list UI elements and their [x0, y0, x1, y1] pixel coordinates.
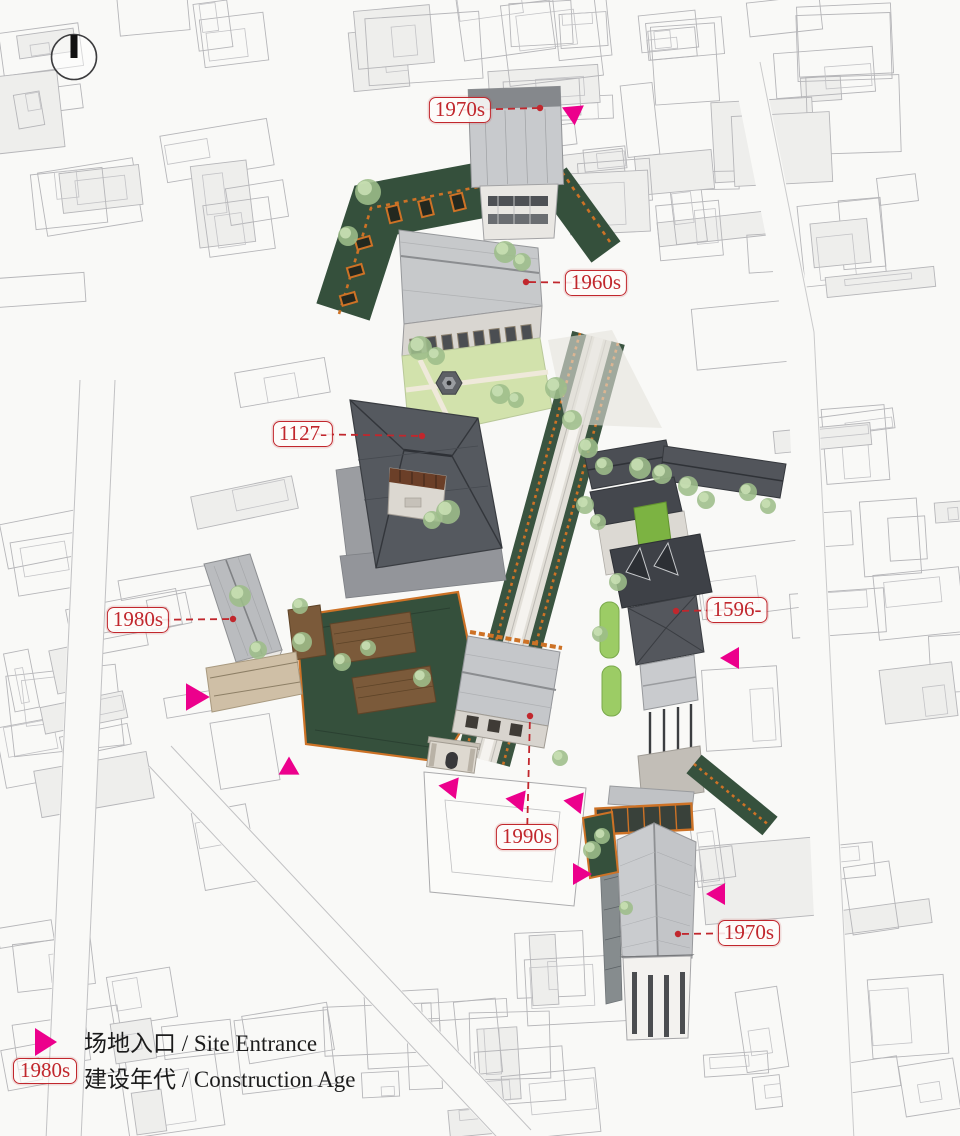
age-label-dot — [537, 105, 543, 111]
north-indicator — [46, 28, 104, 91]
age-label-dot — [675, 931, 681, 937]
age-label-dot — [673, 608, 679, 614]
age-label: 1970s — [718, 920, 780, 946]
south-hall-1990s — [452, 632, 562, 748]
hall-1127 — [336, 400, 506, 598]
age-label-dot — [523, 279, 529, 285]
age-label: 1127- — [273, 421, 333, 447]
age-label-dot — [527, 713, 533, 719]
age-label-dot — [230, 616, 236, 622]
age-label: 1970s — [429, 97, 491, 123]
legend-age-sample: 1980s — [13, 1058, 77, 1084]
age-label: 1596- — [707, 597, 768, 623]
site-plan-canvas: 1970s1960s1127-1596-1980s1990s1970s 场地入口… — [0, 0, 960, 1136]
age-label-dot — [419, 433, 425, 439]
site-plan-drawing — [0, 0, 960, 1136]
legend-age-label: 建设年代 / Construction Age — [84, 1060, 356, 1094]
legend-entrance-label: 场地入口 / Site Entrance — [84, 1024, 317, 1058]
site-entrance-legend-icon — [31, 1026, 61, 1058]
north-bar — [71, 35, 78, 58]
age-label: 1960s — [565, 270, 627, 296]
age-label: 1990s — [496, 824, 558, 850]
west-courtyards — [288, 592, 480, 762]
age-label: 1980s — [107, 607, 169, 633]
